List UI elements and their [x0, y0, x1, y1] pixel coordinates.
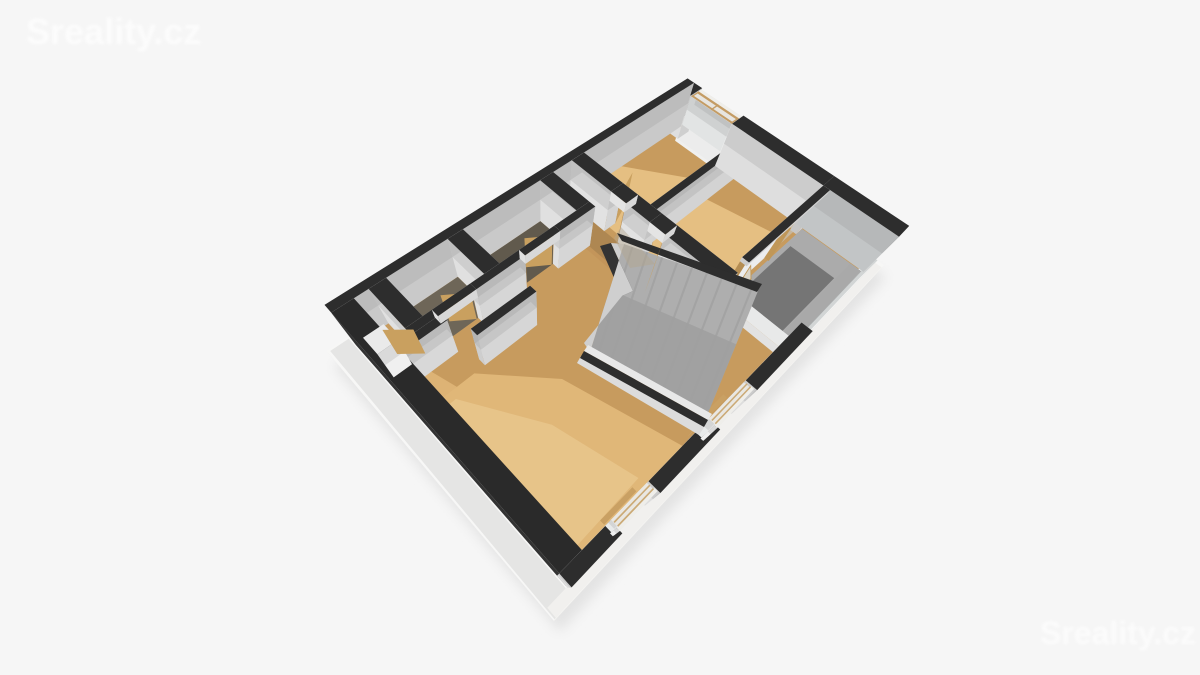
svg-text:Sreality.cz: Sreality.cz [1040, 615, 1196, 651]
svg-text:Sreality.cz: Sreality.cz [26, 11, 201, 52]
